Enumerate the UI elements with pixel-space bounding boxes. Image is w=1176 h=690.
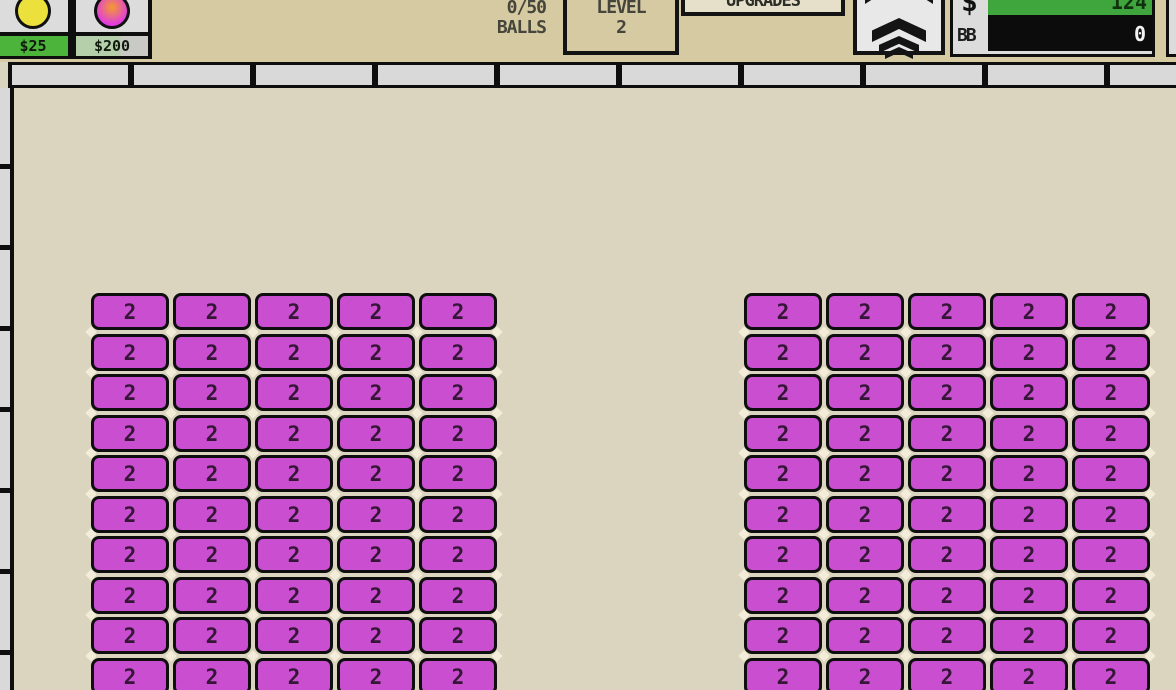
wall-segment	[500, 65, 616, 85]
brick[interactable]: 2	[255, 658, 333, 690]
brick[interactable]: 2	[173, 293, 251, 330]
wall-segment	[378, 65, 494, 85]
brick[interactable]: 2	[908, 536, 986, 573]
brick[interactable]: 2	[990, 293, 1068, 330]
brick[interactable]: 2	[826, 496, 904, 533]
yellow-ball-icon	[15, 0, 51, 29]
buy-yellow-ball-button[interactable]: $25	[0, 0, 72, 59]
brick[interactable]: 2	[419, 415, 497, 452]
brick[interactable]: 2	[990, 374, 1068, 411]
brick[interactable]: 2	[826, 334, 904, 371]
playfield-left-border	[10, 88, 14, 690]
quick-upgrade-button[interactable]	[853, 0, 945, 55]
game-screen: $25 $200 0/50 BALLS LEVEL 2 UPGRADES	[0, 0, 1176, 690]
upgrades-button[interactable]: UPGRADES	[681, 0, 845, 16]
topbar: $25 $200 0/50 BALLS LEVEL 2 UPGRADES	[0, 0, 1176, 62]
brick[interactable]: 2	[337, 415, 415, 452]
brick[interactable]: 2	[744, 293, 822, 330]
brick[interactable]: 2	[255, 374, 333, 411]
brick[interactable]: 2	[419, 617, 497, 654]
brick[interactable]: 2	[744, 455, 822, 492]
brick[interactable]: 2	[337, 496, 415, 533]
brick[interactable]: 2	[173, 617, 251, 654]
level-label: LEVEL	[567, 0, 675, 18]
brick[interactable]: 2	[337, 536, 415, 573]
brick[interactable]: 2	[173, 334, 251, 371]
magenta-ball-icon	[94, 0, 130, 29]
brick[interactable]: 2	[990, 577, 1068, 614]
brick[interactable]: 2	[1072, 658, 1150, 690]
brick[interactable]: 2	[173, 658, 251, 690]
brick[interactable]: 2	[419, 536, 497, 573]
brick[interactable]: 2	[337, 334, 415, 371]
brick[interactable]: 2	[91, 334, 169, 371]
brick[interactable]: 2	[990, 658, 1068, 690]
brick[interactable]: 2	[990, 334, 1068, 371]
brick[interactable]: 2	[173, 536, 251, 573]
brick[interactable]: 2	[91, 536, 169, 573]
wall-segment	[622, 65, 738, 85]
brick[interactable]: 2	[1072, 577, 1150, 614]
buy-magenta-ball-button[interactable]: $200	[72, 0, 152, 59]
brick[interactable]: 2	[826, 577, 904, 614]
money-bar: 124	[988, 0, 1152, 15]
brick[interactable]: 2	[744, 536, 822, 573]
brick[interactable]: 2	[419, 293, 497, 330]
brick[interactable]: 2	[91, 617, 169, 654]
level-value: 2	[567, 18, 675, 38]
balls-counter: 0/50 BALLS	[430, 0, 546, 38]
side-panel-partial	[1166, 0, 1176, 57]
brick[interactable]: 2	[990, 415, 1068, 452]
brick[interactable]: 2	[173, 415, 251, 452]
brick[interactable]: 2	[908, 455, 986, 492]
brick[interactable]: 2	[744, 658, 822, 690]
brick[interactable]: 2	[990, 536, 1068, 573]
yellow-ball-price: $25	[0, 32, 68, 56]
brick[interactable]: 2	[255, 496, 333, 533]
bb-label: BB	[957, 25, 975, 46]
wall-segment	[0, 493, 10, 569]
ball-icon-frame	[76, 0, 148, 32]
brick[interactable]: 2	[1072, 334, 1150, 371]
brick[interactable]: 2	[255, 455, 333, 492]
brick[interactable]: 2	[173, 496, 251, 533]
brick[interactable]: 2	[826, 415, 904, 452]
money-panel: $ 124 BB 0	[950, 0, 1155, 57]
level-box: LEVEL 2	[563, 0, 679, 55]
chevron-up-icon	[865, 0, 933, 4]
left-wall	[0, 88, 10, 690]
brick[interactable]: 2	[337, 617, 415, 654]
balls-count-value: 0/50	[430, 0, 546, 18]
brick[interactable]: 2	[1072, 293, 1150, 330]
brick[interactable]: 2	[91, 415, 169, 452]
wall-segment	[744, 65, 860, 85]
brick[interactable]: 2	[744, 334, 822, 371]
ball-icon-frame	[0, 0, 68, 32]
brick[interactable]: 2	[337, 577, 415, 614]
brick[interactable]: 2	[826, 374, 904, 411]
brick[interactable]: 2	[419, 374, 497, 411]
brick[interactable]: 2	[255, 577, 333, 614]
chevron-up-icon	[885, 47, 913, 59]
brick[interactable]: 2	[1072, 374, 1150, 411]
brick[interactable]: 2	[908, 415, 986, 452]
brick[interactable]: 2	[990, 617, 1068, 654]
wall-segment	[12, 65, 128, 85]
brick[interactable]: 2	[419, 496, 497, 533]
brick[interactable]: 2	[337, 293, 415, 330]
wall-segment	[1110, 65, 1176, 85]
brick[interactable]: 2	[826, 658, 904, 690]
brick[interactable]: 2	[990, 455, 1068, 492]
brick[interactable]: 2	[337, 658, 415, 690]
brick[interactable]: 2	[908, 577, 986, 614]
top-wall	[8, 62, 1176, 88]
brick[interactable]: 2	[908, 293, 986, 330]
brick[interactable]: 2	[255, 334, 333, 371]
wall-segment	[0, 88, 10, 164]
brick[interactable]: 2	[744, 577, 822, 614]
wall-segment	[0, 412, 10, 488]
brick[interactable]: 2	[826, 617, 904, 654]
brick[interactable]: 2	[744, 415, 822, 452]
brick[interactable]: 2	[255, 617, 333, 654]
brick[interactable]: 2	[826, 455, 904, 492]
brick[interactable]: 2	[419, 658, 497, 690]
brick[interactable]: 2	[419, 455, 497, 492]
brick[interactable]: 2	[91, 496, 169, 533]
brick[interactable]: 2	[1072, 496, 1150, 533]
brick[interactable]: 2	[908, 617, 986, 654]
brick[interactable]: 2	[908, 658, 986, 690]
wall-segment	[0, 574, 10, 650]
balls-count-label: BALLS	[430, 18, 546, 38]
brick[interactable]: 2	[990, 496, 1068, 533]
brick[interactable]: 2	[1072, 455, 1150, 492]
wall-segment	[988, 65, 1104, 85]
brick[interactable]: 2	[173, 455, 251, 492]
brick[interactable]: 2	[1072, 617, 1150, 654]
brick[interactable]: 2	[826, 536, 904, 573]
brick[interactable]: 2	[255, 536, 333, 573]
brick[interactable]: 2	[419, 334, 497, 371]
wall-segment	[0, 331, 10, 407]
brick[interactable]: 2	[337, 374, 415, 411]
brick[interactable]: 2	[908, 334, 986, 371]
brick[interactable]: 2	[255, 415, 333, 452]
brick[interactable]: 2	[255, 293, 333, 330]
brick[interactable]: 2	[744, 374, 822, 411]
brick[interactable]: 2	[91, 658, 169, 690]
brick[interactable]: 2	[91, 455, 169, 492]
brick[interactable]: 2	[1072, 536, 1150, 573]
brick[interactable]: 2	[744, 617, 822, 654]
brick[interactable]: 2	[826, 293, 904, 330]
brick[interactable]: 2	[419, 577, 497, 614]
brick[interactable]: 2	[91, 374, 169, 411]
brick[interactable]: 2	[173, 577, 251, 614]
wall-segment	[256, 65, 372, 85]
brick[interactable]: 2	[91, 293, 169, 330]
magenta-ball-price: $200	[76, 32, 148, 56]
brick[interactable]: 2	[908, 496, 986, 533]
wall-segment	[134, 65, 250, 85]
brick[interactable]: 2	[173, 374, 251, 411]
brick[interactable]: 2	[91, 577, 169, 614]
bb-bar: 0	[988, 18, 1152, 51]
brick[interactable]: 2	[908, 374, 986, 411]
brick[interactable]: 2	[337, 455, 415, 492]
wall-segment	[0, 169, 10, 245]
wall-segment	[0, 250, 10, 326]
dollar-icon: $	[961, 0, 978, 18]
wall-segment	[866, 65, 982, 85]
wall-segment	[0, 655, 10, 690]
brick[interactable]: 2	[1072, 415, 1150, 452]
brick[interactable]: 2	[744, 496, 822, 533]
